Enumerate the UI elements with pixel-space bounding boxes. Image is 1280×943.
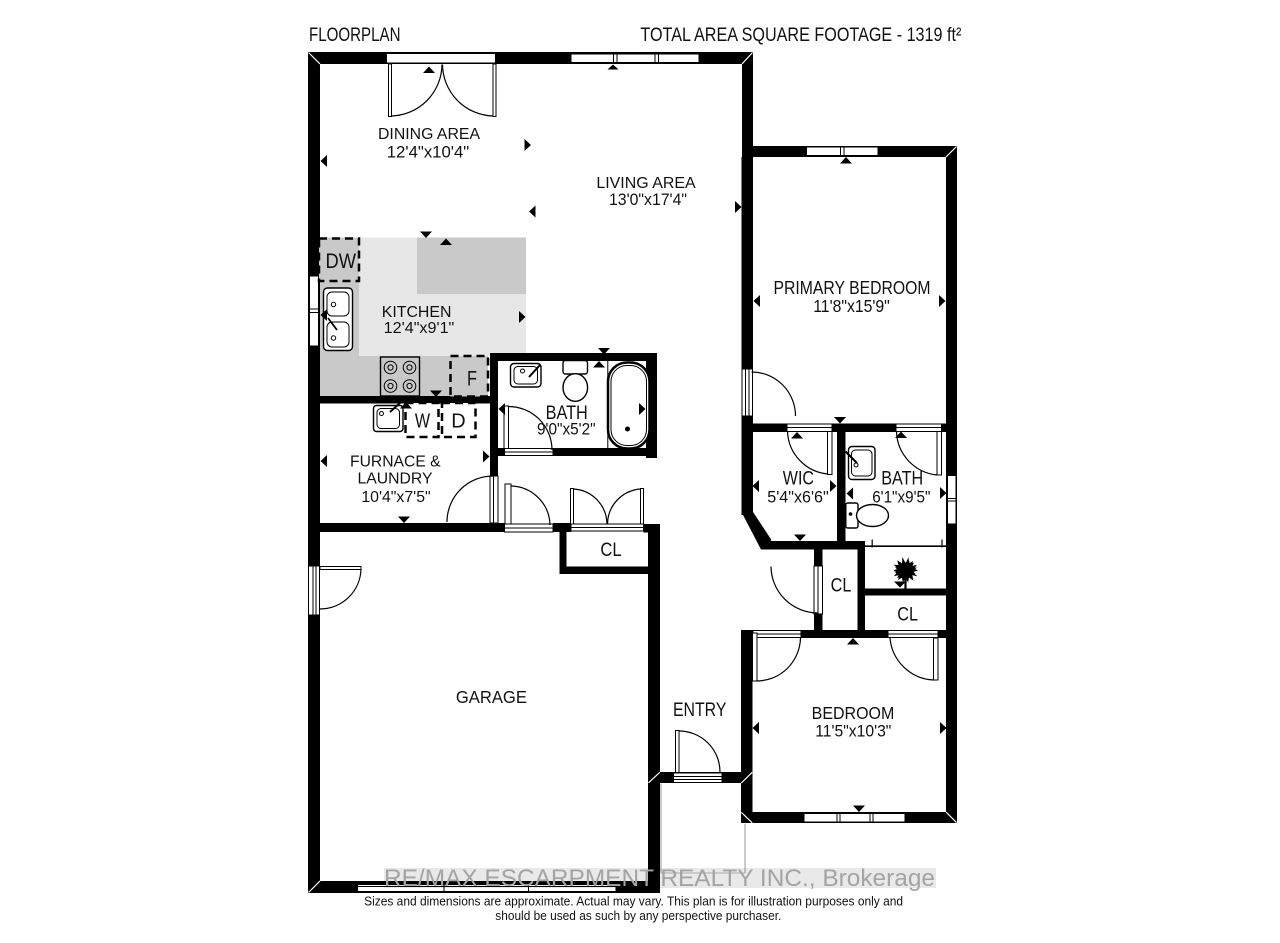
svg-text:LAUNDRY: LAUNDRY: [358, 471, 433, 488]
svg-text:11'5"x10'3": 11'5"x10'3": [815, 722, 891, 741]
svg-text:FURNACE &: FURNACE &: [350, 454, 441, 471]
svg-text:WIC: WIC: [783, 468, 814, 490]
svg-text:CL: CL: [897, 605, 918, 626]
svg-text:CL: CL: [831, 576, 852, 597]
svg-text:W: W: [415, 411, 430, 433]
svg-text:FLOORPLAN: FLOORPLAN: [309, 25, 401, 46]
svg-text:BEDROOM: BEDROOM: [812, 703, 895, 723]
svg-text:CL: CL: [600, 540, 621, 561]
svg-text:12'4"x10'4": 12'4"x10'4": [387, 144, 470, 162]
svg-text:F: F: [467, 368, 477, 391]
svg-text:PRIMARY BEDROOM: PRIMARY BEDROOM: [774, 278, 931, 298]
svg-text:11'8"x15'9": 11'8"x15'9": [813, 296, 890, 316]
svg-text:9'0"x5'2": 9'0"x5'2": [537, 420, 596, 439]
svg-text:should be used as such by any: should be used as such by any perspectiv…: [495, 908, 781, 923]
svg-text:Sizes and dimensions are appro: Sizes and dimensions are approximate. Ac…: [364, 894, 903, 909]
svg-text:5'4"x6'6": 5'4"x6'6": [767, 488, 829, 507]
svg-text:DW: DW: [326, 250, 357, 273]
svg-text:DINING AREA: DINING AREA: [378, 126, 480, 143]
svg-text:RE/MAX ESCARPMENT REALTY INC.,: RE/MAX ESCARPMENT REALTY INC., Brokerage: [384, 865, 935, 892]
svg-text:KITCHEN: KITCHEN: [382, 304, 452, 321]
svg-text:6'1"x9'5": 6'1"x9'5": [872, 488, 930, 507]
svg-text:10'4"x7'5": 10'4"x7'5": [361, 489, 430, 506]
svg-text:D: D: [451, 411, 465, 433]
svg-text:12'4"x9'1": 12'4"x9'1": [384, 320, 455, 337]
svg-text:13'0"x17'4": 13'0"x17'4": [609, 191, 687, 209]
svg-text:ENTRY: ENTRY: [673, 700, 727, 721]
svg-text:BATH: BATH: [881, 468, 923, 490]
svg-text:TOTAL AREA SQUARE FOOTAGE - 13: TOTAL AREA SQUARE FOOTAGE - 1319 ft²: [640, 25, 961, 46]
svg-text:LIVING AREA: LIVING AREA: [596, 175, 696, 192]
svg-text:GARAGE: GARAGE: [456, 687, 527, 707]
